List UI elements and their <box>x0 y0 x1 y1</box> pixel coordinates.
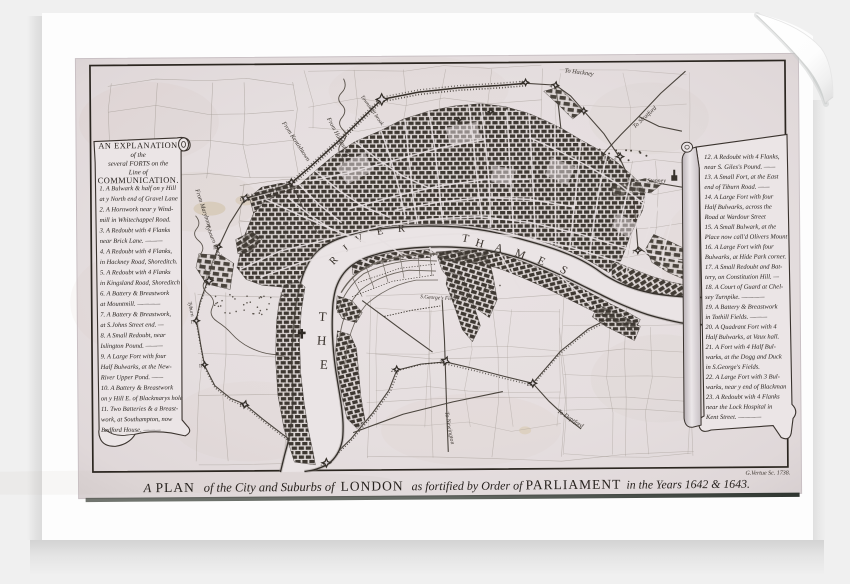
svg-text:19. A Battery & Breastwork: 19. A Battery & Breastwork <box>705 304 777 312</box>
svg-text:sey Turnpike. ————: sey Turnpike. ———— <box>705 294 765 301</box>
svg-text:near S. Giles's Pound. ——: near S. Giles's Pound. —— <box>704 164 775 172</box>
svg-text:A: A <box>142 481 154 495</box>
svg-text:6. A Battery & Breastwork: 6. A Battery & Breastwork <box>100 290 169 298</box>
svg-text:14: 14 <box>239 198 245 203</box>
svg-text:Place now call'd Olivers Mount: Place now call'd Olivers Mount <box>704 233 788 241</box>
svg-text:Half Bulwarks, at Vaux hall.: Half Bulwarks, at Vaux hall. <box>704 333 779 341</box>
svg-text:Islington Pound. ———: Islington Pound. ——— <box>99 343 163 350</box>
svg-text:3. A Redoubt with 4 Flanks: 3. A Redoubt with 4 Flanks <box>99 227 171 235</box>
svg-text:E: E <box>320 357 329 372</box>
svg-text:near the Lock Hospital in: near the Lock Hospital in <box>706 404 773 411</box>
svg-text:near Brick Lane. ———: near Brick Lane. ——— <box>100 238 163 245</box>
svg-text:at y North end of Gravel Lane: at y North end of Gravel Lane <box>99 195 178 203</box>
svg-text:20: 20 <box>320 462 326 467</box>
svg-text:LONDON: LONDON <box>340 478 403 493</box>
svg-text:22. A Large Fort with 3 Bul-: 22. A Large Fort with 3 Bul- <box>706 373 780 381</box>
svg-text:Stepney: Stepney <box>647 178 666 184</box>
svg-text:Bedford House. ———: Bedford House. ——— <box>101 427 161 434</box>
svg-text:end of Tiburn Road. ——: end of Tiburn Road. —— <box>704 184 769 191</box>
svg-text:warks, at the Dogg and Duck: warks, at the Dogg and Duck <box>706 353 782 361</box>
svg-text:tery, on Constitution Hill. —: tery, on Constitution Hill. — <box>705 273 779 281</box>
svg-text:13: 13 <box>285 182 291 187</box>
svg-text:2. A Hornwork near y Wind-: 2. A Hornwork near y Wind- <box>99 206 173 214</box>
svg-text:of the: of the <box>130 152 145 159</box>
svg-text:at Mountmill. ————: at Mountmill. ———— <box>100 301 160 308</box>
svg-text:at S.Johns Street end. —: at S.Johns Street end. — <box>100 322 164 329</box>
svg-text:12. A Redoubt with 4 Flanks,: 12. A Redoubt with 4 Flanks, <box>704 153 780 161</box>
svg-text:14. A Large Fort with four: 14. A Large Fort with four <box>704 194 773 202</box>
svg-text:1. A Bulwark & half on y Hill: 1. A Bulwark & half on y Hill <box>99 185 176 193</box>
svg-text:18. A Court of Guard at Chel-: 18. A Court of Guard at Chel- <box>705 283 783 291</box>
svg-text:17. A Small Redoubt and Bat-: 17. A Small Redoubt and Bat- <box>705 263 782 271</box>
svg-text:9. A Large Fort with four: 9. A Large Fort with four <box>101 353 167 360</box>
svg-text:mill in Whitechappel Road.: mill in Whitechappel Road. <box>100 216 172 224</box>
svg-text:21: 21 <box>391 369 397 374</box>
svg-text:8. A Small Redoubt, near: 8. A Small Redoubt, near <box>100 332 166 339</box>
svg-text:20. A Quadrant Fort with 4: 20. A Quadrant Fort with 4 <box>705 324 777 332</box>
svg-text:Half Bulwarks, at the New-: Half Bulwarks, at the New- <box>100 363 172 371</box>
svg-text:T: T <box>318 309 327 324</box>
svg-text:19: 19 <box>239 404 245 409</box>
svg-text:G.Vertue Sc. 1738.: G.Vertue Sc. 1738. <box>745 470 790 476</box>
svg-text:18: 18 <box>199 364 205 369</box>
svg-text:13. A Small Fort, at the East: 13. A Small Fort, at the East <box>704 174 778 182</box>
svg-text:H: H <box>317 333 327 349</box>
svg-text:Road at Wardour Street: Road at Wardour Street <box>704 214 766 221</box>
svg-text:PARLIAMENT: PARLIAMENT <box>525 477 621 493</box>
svg-text:22: 22 <box>440 360 446 365</box>
svg-text:16. A Large Fort with four: 16. A Large Fort with four <box>705 244 774 252</box>
svg-text:in Tothill Fields. ———: in Tothill Fields. ——— <box>705 314 767 321</box>
svg-text:of the City and Suburbs of: of the City and Suburbs of <box>200 480 337 495</box>
svg-text:16: 16 <box>203 280 209 285</box>
svg-text:4. A Redoubt with 4 Flanks,: 4. A Redoubt with 4 Flanks, <box>100 248 173 256</box>
svg-text:5. A Redoubt with 4 Flanks: 5. A Redoubt with 4 Flanks <box>100 269 171 277</box>
svg-text:PLAN: PLAN <box>155 480 194 495</box>
svg-text:Bulwarks, at Hide Park corner.: Bulwarks, at Hide Park corner. <box>705 253 787 261</box>
svg-text:21. A Fort with 4 Half Bul-: 21. A Fort with 4 Half Bul- <box>706 344 776 352</box>
svg-text:15. A Small Bulwark, at the: 15. A Small Bulwark, at the <box>705 224 777 232</box>
svg-text:23: 23 <box>527 383 533 388</box>
svg-text:11. Two Batteries & a Breast-: 11. Two Batteries & a Breast- <box>101 405 178 413</box>
svg-text:17: 17 <box>190 320 196 325</box>
svg-text:in the Years 1642 & 1643.: in the Years 1642 & 1643. <box>623 477 749 492</box>
svg-text:on y Hill E. of Blackmarys hol: on y Hill E. of Blackmarys hole <box>101 395 183 403</box>
svg-text:in Hackney Road, Shoreditch.: in Hackney Road, Shoreditch. <box>100 258 178 266</box>
svg-text:several FORTS on the: several FORTS on the <box>108 160 168 167</box>
svg-text:work, at Southampton, now: work, at Southampton, now <box>101 416 173 424</box>
svg-text:in Kingsland Road, Shoreditch: in Kingsland Road, Shoreditch <box>100 279 180 287</box>
svg-text:River Upper Pond. ——: River Upper Pond. —— <box>100 374 164 381</box>
svg-text:AN EXPLANATION: AN EXPLANATION <box>98 141 177 151</box>
svg-text:23. A Redoubt with 4 Flanks: 23. A Redoubt with 4 Flanks <box>706 393 780 401</box>
svg-text:in S.George's Fields.: in S.George's Fields. <box>706 364 761 371</box>
svg-text:as fortified by Order of: as fortified by Order of <box>408 478 525 493</box>
svg-text:COMMUNICATION.: COMMUNICATION. <box>98 176 179 186</box>
svg-text:Half Bulwarks, across the: Half Bulwarks, across the <box>703 204 771 212</box>
svg-text:7. A Battery & Breastwork,: 7. A Battery & Breastwork, <box>100 311 171 319</box>
svg-text:warks, near y end of Blackman: warks, near y end of Blackman <box>706 383 787 391</box>
svg-text:Kent Street. ————: Kent Street. ———— <box>705 414 761 421</box>
svg-text:10. A Battery & Breastwork: 10. A Battery & Breastwork <box>101 384 173 392</box>
